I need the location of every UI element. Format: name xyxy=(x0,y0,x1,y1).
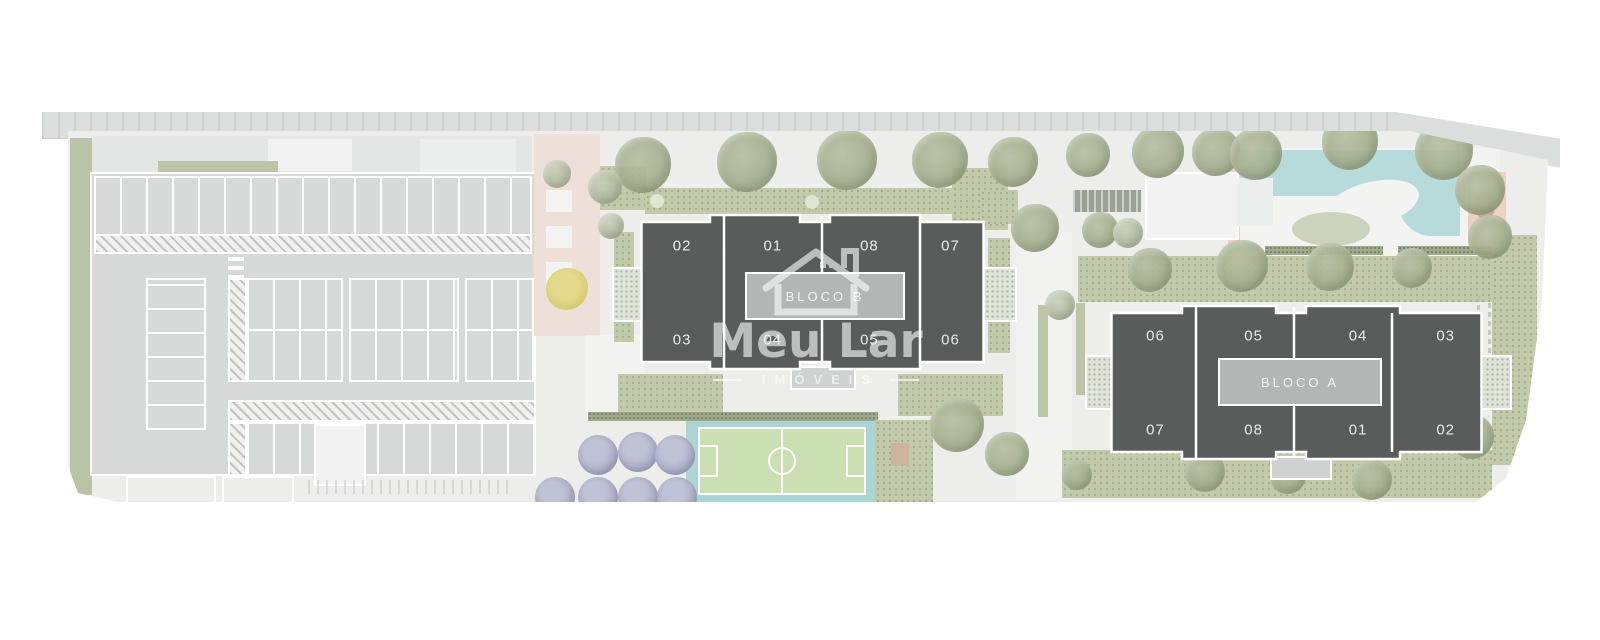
tree xyxy=(930,398,984,452)
court-field xyxy=(698,427,866,495)
divider xyxy=(889,379,919,381)
tree xyxy=(817,130,877,190)
hedge-row xyxy=(588,412,878,421)
site-plan: BLOCO B 0201080703040506 BLOCO A 0605040… xyxy=(0,0,1600,640)
unit-bloco-a-03[interactable]: 03 xyxy=(1436,328,1455,345)
tree xyxy=(1066,133,1110,177)
service-box xyxy=(222,476,294,506)
planter-strip xyxy=(1038,305,1048,417)
unit-bloco-a-04[interactable]: 04 xyxy=(1349,328,1368,345)
walkway-hatch xyxy=(228,278,247,382)
parking-room xyxy=(420,139,516,173)
bush xyxy=(805,195,819,209)
parking-bays xyxy=(247,278,343,382)
umbrella xyxy=(618,477,658,517)
tree xyxy=(1113,218,1143,248)
watermark-subtitle: IMÓVEIS xyxy=(753,372,879,387)
umbrella xyxy=(618,432,658,472)
utility-block xyxy=(314,424,366,486)
parking-bays xyxy=(94,176,532,236)
building-bloco-a: BLOCO A 0605040307080102 xyxy=(1110,303,1483,462)
parking-bays xyxy=(146,278,206,430)
house-logo-icon xyxy=(760,244,872,316)
walkway-hatch xyxy=(228,422,247,476)
walkway-hatch xyxy=(94,234,532,254)
garden-band xyxy=(1492,235,1537,465)
umbrella xyxy=(578,477,618,517)
parking-room xyxy=(268,139,352,171)
paving xyxy=(1237,178,1273,226)
tree xyxy=(615,137,671,193)
deck-tile xyxy=(546,190,572,212)
unit-bloco-a-07[interactable]: 07 xyxy=(1146,422,1165,439)
umbrella xyxy=(535,477,575,517)
bush xyxy=(650,194,664,208)
service-box xyxy=(126,476,216,506)
sports-court xyxy=(686,418,878,504)
umbrella xyxy=(655,435,695,475)
tree xyxy=(988,137,1038,187)
unit-bloco-a-02[interactable]: 02 xyxy=(1436,422,1455,439)
walkway-hatch xyxy=(228,400,536,422)
unit-bloco-a-05[interactable]: 05 xyxy=(1244,328,1263,345)
green-edge-strip xyxy=(70,138,92,495)
playground xyxy=(891,443,909,465)
watermark-subtitle-row: IMÓVEIS xyxy=(713,372,919,387)
corridor-bloco-a: BLOCO A xyxy=(1218,358,1382,406)
planter-strip xyxy=(1076,303,1085,395)
parking-bays xyxy=(465,278,534,382)
watermark: Meu Lar IMÓVEIS xyxy=(688,244,944,387)
watermark-brand: Meu Lar xyxy=(709,318,922,365)
umbrella xyxy=(657,477,697,517)
unit-bloco-a-01[interactable]: 01 xyxy=(1349,422,1368,439)
court-goal-area-left xyxy=(698,445,718,477)
deck-tile xyxy=(546,226,572,248)
bloco-a-label: BLOCO A xyxy=(1261,375,1339,390)
court-center-circle xyxy=(768,447,796,475)
tree xyxy=(717,132,777,192)
pergola xyxy=(1073,190,1141,212)
umbrella xyxy=(578,435,618,475)
unit-bloco-a-08[interactable]: 08 xyxy=(1244,422,1263,439)
parking-bays xyxy=(247,422,536,476)
divider xyxy=(713,379,743,381)
parking-bays xyxy=(349,278,459,382)
stone-mound xyxy=(1292,212,1370,246)
court-goal-area-right xyxy=(846,445,866,477)
pavement-marks xyxy=(308,480,513,494)
unit-bloco-a-06[interactable]: 06 xyxy=(1146,328,1165,345)
pavilion xyxy=(1145,172,1239,240)
tree xyxy=(1132,126,1184,178)
